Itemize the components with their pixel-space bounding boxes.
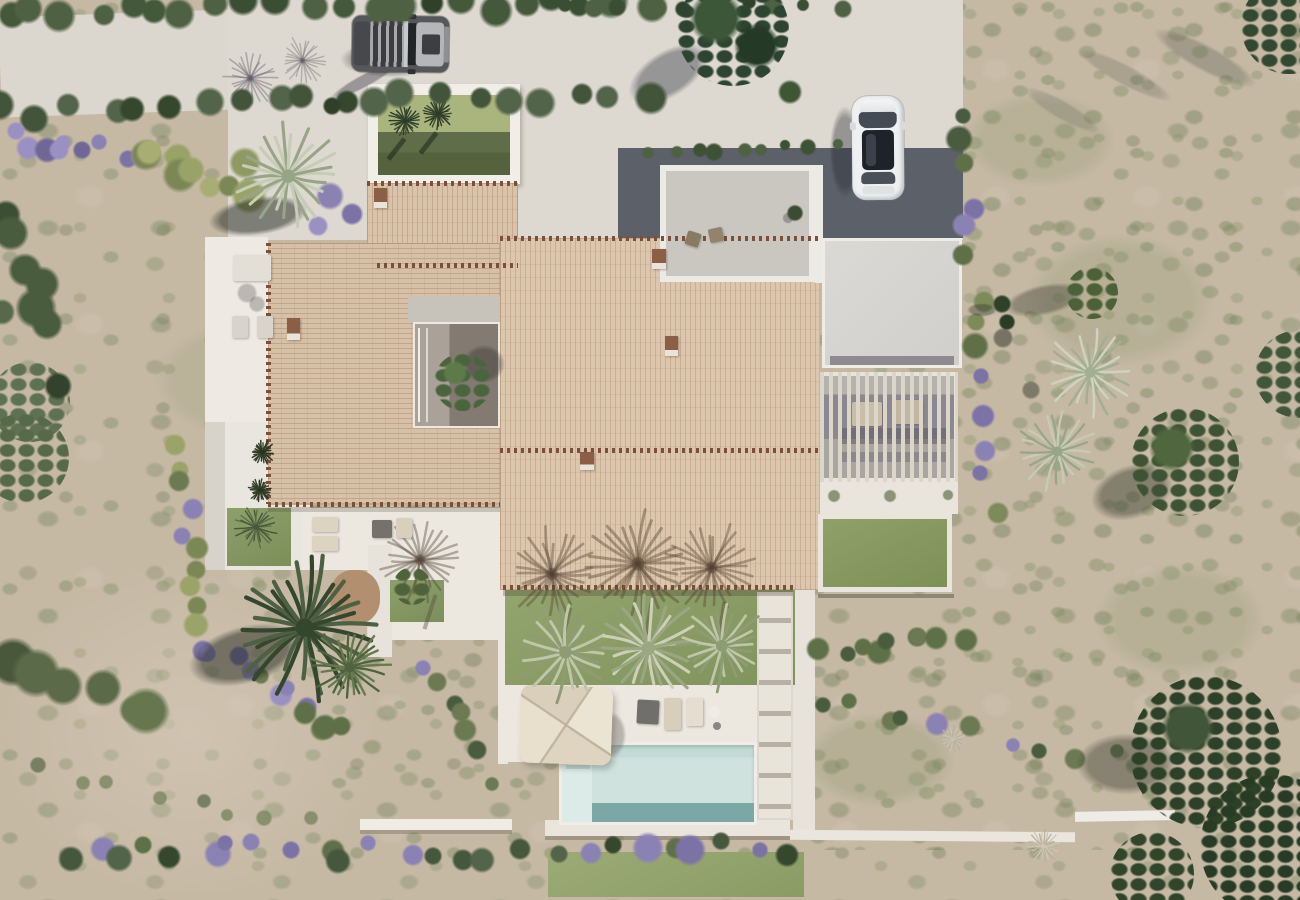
shrub-column-left-4 [181,497,205,521]
shrub-band-bottom-12 [359,834,377,852]
shrub-band-bottom-8 [241,832,261,852]
aerial-villa-rendering: Top-down aerial 3D rendering of a Medite… [0,0,1300,900]
bed-right-of-garage-10 [972,367,990,385]
suv-mirror-bottom [408,69,416,74]
hedge-below-road-19 [594,84,620,110]
bed-right-of-garage-14 [986,501,1010,525]
tufts-bottom-left-6 [220,808,234,822]
shrub-column-left-1 [163,433,187,457]
hedge-below-road-15 [469,86,493,110]
shrubs-bottom-right-1 [814,696,832,714]
hedge-entry-court-9 [832,138,844,150]
hedge-below-road-10 [287,82,315,110]
bed-right-of-garage-12 [973,439,997,463]
terrace-pot-2 [883,489,897,503]
shrub-band-bottom-13 [401,843,425,867]
garden-below-right-lawn-9 [953,627,979,653]
tufts-bottom-left-3 [98,774,114,790]
chimney-3 [665,336,678,356]
lavender-bottom-left-12 [330,715,352,737]
suv-hood-stripe [422,34,440,54]
eave-north-wing-bottom [377,263,518,268]
lawn-right-shadow-line [818,594,954,598]
set-dark-mid [372,520,392,538]
lawn-palm-3 [664,588,780,704]
hedge-entry-court-4 [704,142,724,162]
tree-near-sedan [777,79,803,105]
shrubs-bottom-right-7 [1005,737,1021,753]
shrub-column-left-6 [184,535,210,561]
chair-left-terrace-2 [257,316,273,338]
shrub-band-bottom-11 [324,847,352,875]
dry-shrub-1 [1022,825,1064,867]
tufts-bottom-left-1 [29,756,47,774]
garden-below-right-lawn-8 [923,625,949,651]
bed-right-of-garage-11 [970,403,996,429]
shrub-band-bottom-1 [57,845,85,873]
shrub-band-bottom-9 [281,840,301,860]
shrub-band-bottom-18 [549,844,569,864]
tufts-bottom-left-8 [303,810,319,826]
green-tree-right [1066,267,1118,319]
silver-palm-left [222,110,354,242]
sage-patch-2 [1090,560,1270,680]
garden-wall-left [360,819,512,830]
dark-tree-right-highlight [1148,424,1196,472]
deck-bottom [545,820,790,836]
courtyard-tree-highlight [442,360,468,386]
bed-right-of-garage-5 [951,212,977,238]
trees-left-edge-2 [0,214,30,252]
hedge-entry-court-6 [754,143,768,157]
shrub-band-bottom-20 [603,835,623,855]
shrub-band-bottom-17 [508,837,532,861]
suv-rear-hatch [354,21,371,65]
garden-left-of-pool-7 [484,776,500,792]
shrub-band-bottom-26 [774,842,800,868]
shrub-band-bottom-24 [711,831,731,851]
suv-roof-rack [370,21,407,67]
entry-courtyard [660,165,815,282]
entry-chair-2 [708,227,725,244]
shrubs-bottom-right-2 [840,692,858,710]
hedge-top-4 [92,3,116,27]
lawn-right [818,514,952,592]
shrubs-bottom-right-8 [1030,742,1048,760]
pergola-slats [820,372,958,482]
hedge-entry-court-7 [779,139,791,151]
sedan-roof-reflection [866,134,876,166]
tufts-bottom-left-4 [152,790,168,806]
agave-2 [246,476,274,504]
shrub-band-bottom-4 [133,835,153,855]
bed-right-of-garage-9 [960,331,990,361]
eave-central-top [500,236,820,241]
eave-north-wing-top [367,181,518,186]
terrace-pot-3 [942,489,954,501]
garage-roof-band [830,356,954,365]
garage-roof [822,238,962,368]
hedge-below-road-18 [570,82,594,106]
silver-palm-right-b [1008,402,1107,501]
tree-bottom-terrace [393,567,431,605]
shrub-column-left-10 [182,611,210,639]
chimney-4 [580,452,594,470]
chimney-2 [652,249,666,269]
hedge-below-road-14 [427,80,453,106]
sedan-hood [860,100,896,112]
hedge-below-road-13 [382,76,416,110]
hedge-entry-court-1 [641,146,655,160]
sedan-mirror-left [850,122,856,130]
chimney-5 [287,318,300,340]
terrace-pot-1 [827,489,841,503]
courtyard-mullion-2 [426,328,428,422]
pool-side-table [713,722,721,730]
shrub-band-bottom-19 [579,841,603,865]
entry-plant [786,204,804,222]
chair-left-terrace-1 [232,316,248,338]
shrub-band-bottom-3 [104,843,134,873]
garden-left-of-pool-6 [466,739,488,761]
tufts-bottom-left-7 [255,809,273,827]
hedge-below-road-6 [155,93,183,121]
wall-band-above-courtyard [408,296,500,322]
shrub-band-bottom-14 [423,846,443,866]
trees-left-edge-6 [30,307,64,341]
hedge-below-road-5 [118,95,146,123]
eave-central-ridge [500,448,820,453]
big-tree-top-dark [733,22,781,70]
white-sedan-car [852,96,905,200]
sedan-windshield [859,112,897,128]
shrub-column-left-3 [167,469,191,493]
suv-front-bumper [444,27,450,63]
scrub-yellow-left-2 [135,138,163,166]
courtyard-mullion-1 [418,328,420,422]
garden-left-of-pool-2 [426,671,448,693]
tufts-bottom-left-5 [196,793,212,809]
hedge-below-road-16 [493,85,525,117]
agave-1 [247,437,278,468]
sofa-left-terrace [233,255,271,281]
hedge-below-road-3 [55,92,81,118]
bed-right-of-garage-3 [953,152,975,174]
bed-right-of-garage-13 [971,464,989,482]
grove-bottom-right-highlight [1160,700,1216,756]
pool-deep-band [592,803,754,822]
garden-wall-left-shadow [360,830,512,834]
terrace-right-of-path [793,590,815,830]
set-beige-mid [396,518,412,538]
hedge-entry-court-5 [737,142,753,158]
dry-shrub-2 [936,723,969,756]
bed-right-of-garage-1 [954,107,972,125]
hedge-below-road-17 [523,86,557,120]
olive-trees-bottom-left-4 [83,668,123,708]
shrub-band-bottom-23 [673,833,707,867]
bed-right-of-garage-6 [951,243,975,267]
sedan-trunk [862,186,894,194]
left-edge-tree-rim [43,371,73,401]
shrubs-bottom-right-4 [891,709,909,727]
lavender-top-left-5 [54,134,72,152]
bed-right-of-garage-2 [944,124,974,154]
hedge-entry-court-2 [670,145,684,159]
cypress-right-1 [992,294,1012,314]
olive-trees-bottom-left-6 [121,686,171,736]
hedge-entry-court-8 [799,138,817,156]
shrub-band-bottom-16 [468,846,496,874]
sedan-mirror-right [900,122,906,130]
hedge-top-right-10 [833,0,853,19]
tufts-bottom-left-2 [75,775,91,791]
hedge-below-road-20 [633,80,669,116]
cypress-right-2 [998,313,1016,331]
lavender-top-left-7 [90,133,108,151]
garden-below-right-lawn-5 [876,631,896,651]
shrub-band-bottom-7 [216,834,234,852]
grove-bottom-right-3 [1110,832,1194,900]
shrub-band-bottom-21 [631,831,665,865]
pool-step-3 [566,765,590,769]
palm-frond-shadow-road-2 [273,31,332,90]
sofa-shadow-2 [248,295,266,313]
garden-below-right-lawn-1 [805,636,831,662]
lounger-mid-1 [312,517,338,532]
roof-north-wing [367,183,518,245]
chimney-1 [374,188,387,208]
lavender-top-left-6 [72,140,92,160]
medium-palm-left [300,618,399,717]
shrub-band-bottom-5 [156,844,182,870]
sedan-rear-window [861,172,895,184]
olive-trees-bottom-left-3 [42,665,84,707]
shrub-band-bottom-25 [751,841,769,859]
